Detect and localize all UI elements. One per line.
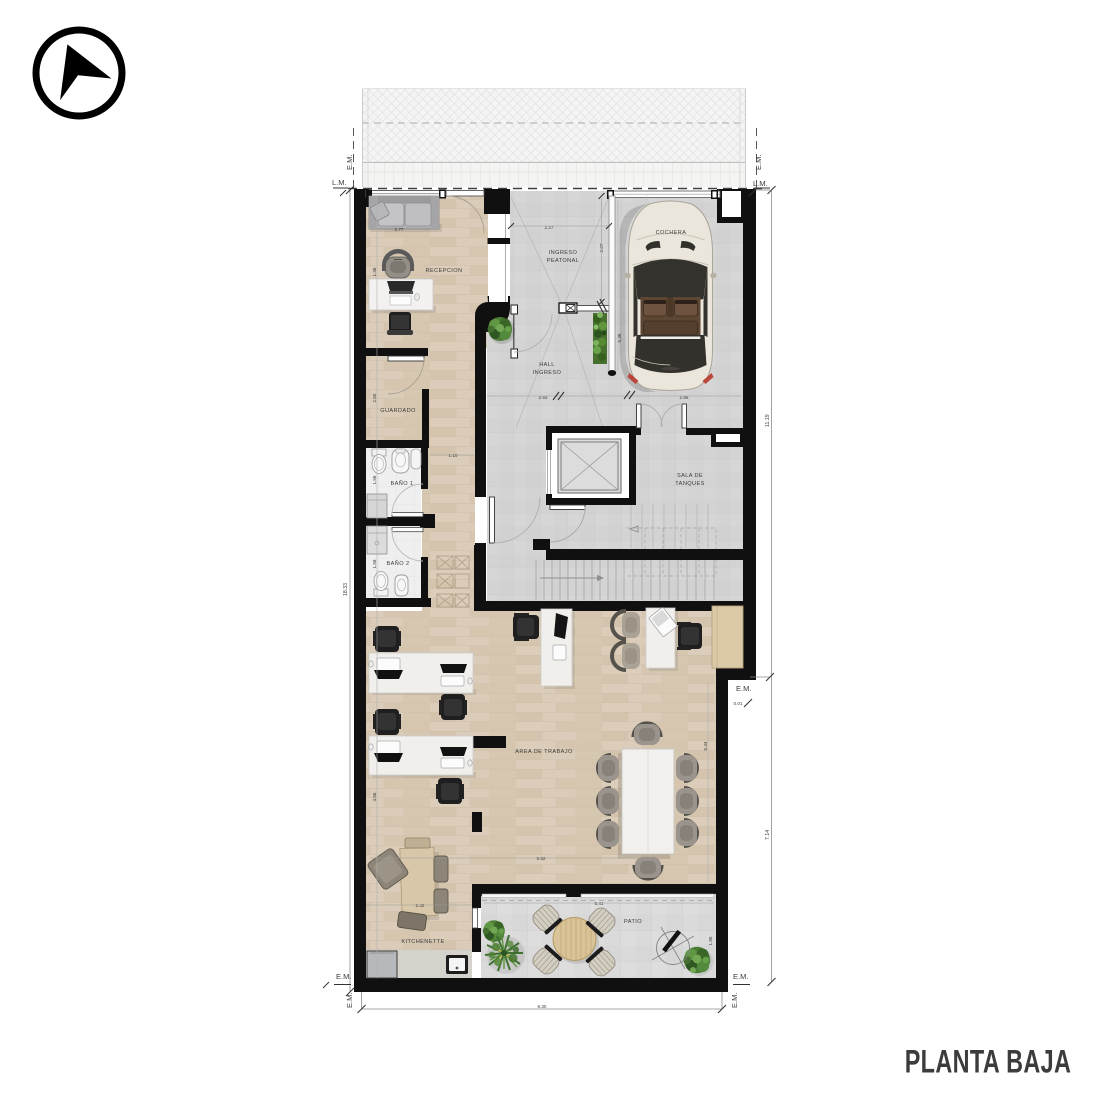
svg-text:BAÑO 1: BAÑO 1 [391,480,414,487]
svg-text:PLANTA BAJA: PLANTA BAJA [905,1043,1072,1080]
svg-text:5.52: 5.52 [537,856,546,861]
svg-text:E.M.: E.M. [736,684,751,693]
svg-text:1.56: 1.56 [372,475,377,484]
svg-text:PEATONAL: PEATONAL [547,258,580,264]
svg-text:1.95: 1.95 [708,936,713,945]
svg-text:11.19: 11.19 [765,414,771,427]
svg-text:RECEPCION: RECEPCION [426,268,463,274]
svg-text:BAÑO 2: BAÑO 2 [387,560,410,567]
svg-text:2.77: 2.77 [395,227,404,232]
svg-text:AREA DE TRABAJO: AREA DE TRABAJO [515,749,573,755]
svg-text:1.58: 1.58 [372,559,377,568]
svg-text:E.M.: E.M. [754,155,763,170]
svg-text:INGRESO: INGRESO [533,370,562,376]
svg-text:0.01: 0.01 [734,701,743,706]
svg-text:1.36: 1.36 [372,267,377,276]
svg-text:E.M.: E.M. [345,993,354,1008]
svg-text:L.M.: L.M. [332,178,347,187]
svg-text:1.10: 1.10 [449,453,458,458]
svg-text:5.44: 5.44 [703,741,708,750]
svg-text:KITCHENETTE: KITCHENETTE [401,939,444,945]
svg-text:7.14: 7.14 [765,830,771,840]
svg-text:E.M.: E.M. [345,155,354,170]
svg-text:L.M.: L.M. [753,179,768,188]
svg-text:E.M.: E.M. [733,972,748,981]
svg-text:E.M.: E.M. [730,993,739,1008]
svg-text:COCHERA: COCHERA [656,230,687,236]
svg-text:5.41: 5.41 [595,901,604,906]
svg-text:18.33: 18.33 [343,583,349,596]
svg-text:HALL: HALL [539,362,555,368]
svg-text:8.30: 8.30 [538,1004,547,1009]
svg-text:TANQUES: TANQUES [675,481,704,487]
svg-text:PATIO: PATIO [624,919,642,925]
svg-text:2.50: 2.50 [372,393,377,402]
svg-text:INGRESO: INGRESO [549,250,578,256]
svg-text:5.36: 5.36 [617,333,622,342]
svg-text:E.M.: E.M. [336,972,351,981]
svg-text:4.56: 4.56 [372,792,377,801]
svg-text:2.42: 2.42 [416,903,425,908]
svg-text:SALA DE: SALA DE [677,473,703,479]
svg-text:GUARDADO: GUARDADO [380,408,416,414]
